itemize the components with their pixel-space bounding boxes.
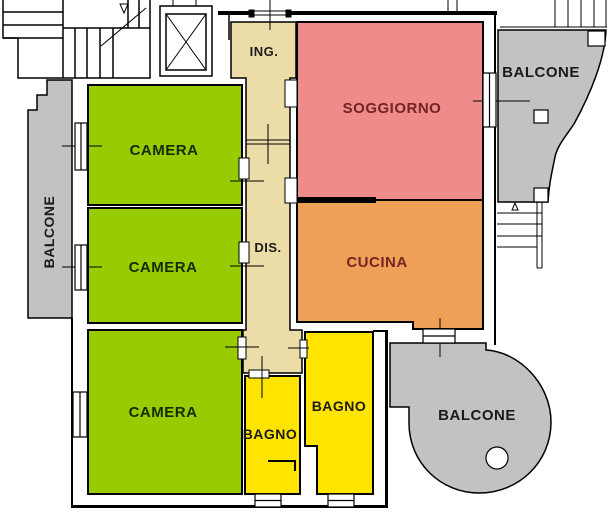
window-camera-3 — [73, 392, 87, 437]
window-bagno-large — [328, 494, 354, 507]
window-camera-2 — [75, 245, 87, 290]
door-ing-soggiorno — [285, 80, 297, 107]
label-camera-3: CAMERA — [129, 404, 198, 421]
label-balcone-bottom-right: BALCONE — [438, 407, 516, 424]
label-cucina: CUCINA — [346, 254, 407, 271]
label-dis: DIS. — [254, 240, 281, 255]
door-camera-3 — [238, 337, 246, 359]
floor-plan-canvas: ING. SOGGIORNO CUCINA DIS. CAMERA CAMERA… — [0, 0, 610, 520]
label-balcone-top-right: BALCONE — [502, 64, 580, 81]
label-ing: ING. — [250, 44, 279, 59]
label-camera-2: CAMERA — [129, 259, 198, 276]
label-camera-1: CAMERA — [130, 142, 199, 159]
door-bagno-small — [249, 370, 269, 378]
stair-direction-arrow — [512, 203, 518, 210]
stair-direction-arrow — [120, 4, 128, 13]
window-camera-1 — [75, 123, 87, 170]
door-camera-1 — [239, 158, 249, 179]
door-dis-cucina — [285, 178, 297, 203]
staircase-right — [497, 202, 542, 268]
balcony-drain-hole — [486, 447, 508, 469]
floor-plan: ING. SOGGIORNO CUCINA DIS. CAMERA CAMERA… — [0, 0, 610, 520]
window-cucina — [423, 329, 455, 343]
door-bagno-large — [300, 340, 307, 358]
staircase-top-left — [3, 0, 150, 78]
window-bagno-small — [255, 494, 281, 507]
door-camera-2 — [239, 242, 249, 263]
label-bagno-small: BAGNO — [243, 426, 298, 442]
label-soggiorno: SOGGIORNO — [343, 100, 442, 117]
label-balcone-left: BALCONE — [41, 196, 57, 269]
balcony-top-right — [498, 30, 606, 202]
elevator-shaft — [160, 0, 212, 76]
staircase-top-right — [500, 0, 607, 27]
label-bagno-large: BAGNO — [312, 398, 367, 414]
interior-wall-divider — [292, 197, 376, 203]
window-soggiorno — [483, 73, 496, 127]
